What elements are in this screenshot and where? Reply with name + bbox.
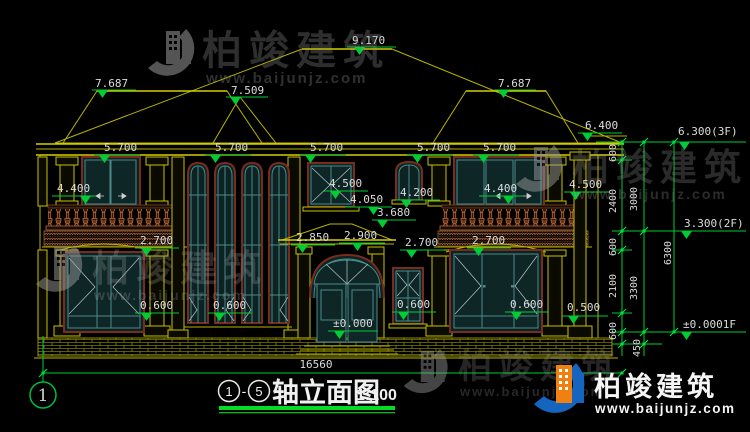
porch-column: [548, 256, 562, 326]
vertical-dim-text: 2100: [608, 274, 619, 298]
axis-dash: -: [242, 383, 247, 399]
window-sill: [303, 207, 359, 211]
level-text: 5.700: [483, 141, 516, 154]
vertical-dim-text: 3300: [629, 276, 640, 300]
level-text: ±0.0001F: [683, 318, 736, 331]
vertical-dim-text: 600: [608, 238, 619, 256]
watermark-logo-icon: [148, 29, 194, 76]
level-text: 7.687: [95, 77, 128, 90]
brand-logo: 柏竣建筑 www.baijunjz.com: [534, 363, 736, 416]
watermark-url: www.baijunjz.com: [205, 70, 367, 87]
vertical-dim-text: 600: [608, 322, 619, 340]
balcony-door: [82, 157, 140, 207]
axis-bubble-label: 1: [38, 386, 49, 406]
watermark-top: 柏竣建筑 www.baijunjz.com: [148, 29, 390, 87]
drawing-title-block: 1 - 5 轴立面图 1:100: [219, 377, 398, 413]
logo-tower-icon: [556, 365, 572, 403]
level-triangle-icon: [681, 332, 692, 340]
level-text: 2.700: [405, 236, 438, 249]
entrance-pilaster: [298, 254, 310, 338]
window-sill: [389, 324, 427, 328]
level-text: 2.900: [344, 229, 377, 242]
level-triangle-icon: [97, 90, 108, 98]
brand-url: www.baijunjz.com: [594, 401, 736, 416]
watermark-brand: 柏竣建筑: [92, 247, 268, 289]
level-triangle-icon: [210, 155, 221, 163]
level-triangle-icon: [305, 155, 316, 163]
level-triangle-icon: [498, 90, 509, 98]
level-text: 5.700: [417, 141, 450, 154]
brand-name: 柏竣建筑: [594, 371, 718, 402]
watermark-bottom: 柏竣建筑 www.baijunjz.com: [404, 347, 622, 399]
level-marker: 7.687: [92, 77, 136, 98]
level-marker: 6.400: [578, 119, 622, 141]
vertical-dim-text: 6300: [663, 241, 674, 265]
level-text: 5.700: [310, 141, 343, 154]
level-text: 4.200: [400, 186, 433, 199]
corner-pilaster: [38, 157, 47, 206]
watermark-brand: 柏竣建筑: [202, 29, 390, 73]
level-text: 7.687: [498, 77, 531, 90]
level-marker: 7.509: [226, 84, 268, 105]
cad-elevation-screenshot: 16560 1 9.1707.6877.5097.6876.4006.300(3…: [0, 0, 750, 432]
level-text: 3.300(2F): [684, 217, 744, 230]
watermark-url: www.baijunjz.com: [93, 287, 247, 303]
level-marker: 3.680: [372, 206, 416, 228]
level-text: 5.700: [215, 141, 248, 154]
level-text: 5.700: [104, 141, 137, 154]
level-text: 0.600: [510, 298, 543, 311]
level-text: 0.600: [397, 298, 430, 311]
level-text: 6.400: [585, 119, 618, 132]
level-text: 2.850: [296, 231, 329, 244]
right-wing-roof: [433, 91, 578, 143]
porch-column: [432, 256, 446, 326]
level-triangle-icon: [681, 231, 692, 239]
level-triangle-icon: [377, 220, 388, 228]
porch-column: [432, 165, 446, 203]
level-triangle-icon: [582, 133, 593, 141]
vertical-dim-text: 450: [632, 339, 643, 357]
axis-start-label: 1: [225, 384, 232, 399]
level-text: 4.400: [57, 182, 90, 195]
level-text: 6.300(3F): [678, 125, 738, 138]
title-underline-thin: [219, 412, 395, 413]
balcony-balustrade: [440, 205, 580, 230]
watermark-url: www.baijunjz.com: [573, 186, 727, 202]
balcony-balustrade: [46, 205, 182, 230]
level-marker: ±0.0001F: [676, 318, 744, 340]
roof-valley-line: [240, 97, 276, 143]
first-floor-window: [446, 244, 546, 332]
level-text: 0.500: [567, 301, 600, 314]
level-triangle-icon: [230, 97, 241, 105]
level-text: 4.050: [350, 193, 383, 206]
level-text: ±0.000: [333, 317, 373, 330]
level-text: 3.680: [377, 206, 410, 219]
level-text: 2.700: [140, 234, 173, 247]
level-triangle-icon: [406, 250, 417, 258]
total-width-text: 16560: [299, 358, 332, 371]
level-triangle-icon: [352, 243, 363, 251]
title-underline-thick: [219, 406, 395, 410]
arched-window: [269, 163, 289, 323]
level-marker: 3.300(2F): [676, 217, 744, 239]
pilaster: [172, 157, 184, 330]
watermark-brand: 柏竣建筑: [572, 146, 748, 188]
logo-tower-icon: [574, 373, 584, 403]
drawing-scale: 1:100: [356, 387, 397, 404]
level-text: 4.500: [329, 177, 362, 190]
level-marker: 7.687: [494, 77, 536, 98]
level-text: 4.400: [484, 182, 517, 195]
porch-column: [150, 165, 164, 203]
axis-end-label: 5: [255, 384, 262, 399]
level-text: 2.700: [472, 234, 505, 247]
